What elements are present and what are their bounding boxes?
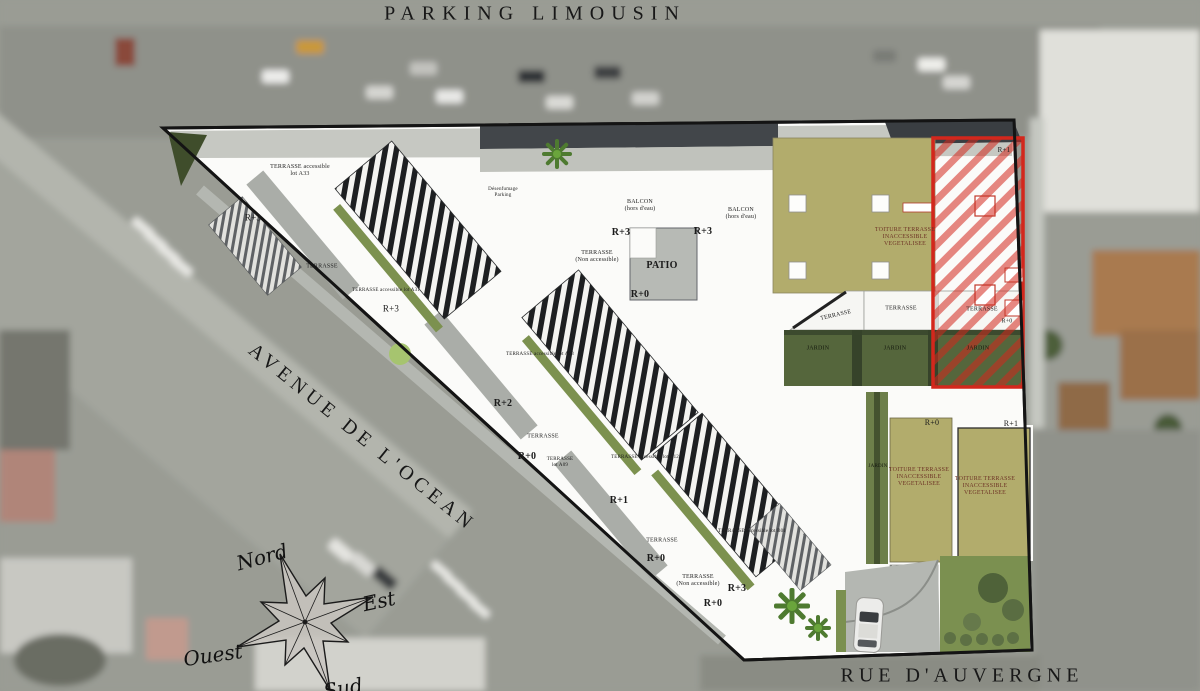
plan-label: TERRASSE	[966, 306, 998, 313]
plan-label: Désenfumage Parking	[488, 187, 518, 199]
floor-label: R+1	[998, 146, 1011, 154]
street-label-rue: RUE D'AUVERGNE	[840, 665, 1083, 688]
plan-label: TERRASSE accessible lot A12	[611, 455, 679, 461]
plan-label: BALCON (hors d'eau)	[625, 199, 656, 213]
floor-label: R+0	[647, 553, 666, 565]
floor-label: R+2	[494, 398, 513, 410]
garden-label: JARDIN	[807, 345, 830, 352]
site-plan-graphic	[0, 0, 1200, 691]
plan-label: TERRASSE accessible lot A23	[506, 352, 574, 358]
floor-label: R+3	[612, 227, 631, 239]
plan-label: TERRASSE	[306, 263, 338, 270]
garden-label: JARDIN	[967, 345, 990, 352]
floor-label: R+0	[704, 598, 723, 610]
green-roof-label: TOITURE TERRASSE INACCESSIBLE VEGETALISE…	[955, 476, 1015, 498]
plan-label: TERRASSE lot A09	[547, 457, 574, 469]
green-roof-label: TOITURE TERRASSE INACCESSIBLE VEGETALISE…	[875, 227, 935, 249]
floor-label: R+3	[694, 226, 713, 238]
floor-label: R+1	[1004, 419, 1018, 429]
floor-label: R+0	[925, 418, 939, 428]
plan-label: TERRASSE accessible lot B01	[718, 529, 786, 535]
plan-label: TERRASSE (Non accessible)	[575, 250, 618, 264]
green-roof-block	[773, 138, 935, 293]
garden-label: JARDIN	[884, 345, 907, 352]
plan-label: TERRASSE (Non accessible)	[676, 574, 719, 588]
plan-label: TERRASSE	[646, 537, 678, 544]
plan-label: BALCON (hors d'eau)	[726, 207, 757, 221]
plan-label: TERRASSE	[527, 433, 559, 440]
page-title: PARKING LIMOUSIN	[384, 3, 686, 26]
floor-label: R+0	[518, 451, 537, 463]
site-plan-page: PARKING LIMOUSIN AVENUE DE L'OCEAN RUE D…	[0, 0, 1200, 691]
plan-label: TERRASSE accessible lot A33	[270, 164, 330, 178]
floor-label: R+0	[631, 289, 650, 301]
floor-label: R+1	[610, 495, 629, 507]
garden-label: JARDIN	[869, 464, 888, 470]
car-icon	[853, 597, 884, 653]
patio-label: PATIO	[646, 260, 677, 272]
green-roof-label: TOITURE TERRASSE INACCESSIBLE VEGETALISE…	[889, 467, 949, 489]
plan-label: TERRASSE accessible lot A31	[352, 288, 420, 294]
floor-label: R+0	[1002, 318, 1013, 325]
floor-label: R+3	[728, 583, 747, 595]
plan-label: TERRASSE	[885, 305, 917, 312]
floor-label: R+3	[245, 213, 261, 224]
floor-label: R+3	[383, 304, 399, 315]
